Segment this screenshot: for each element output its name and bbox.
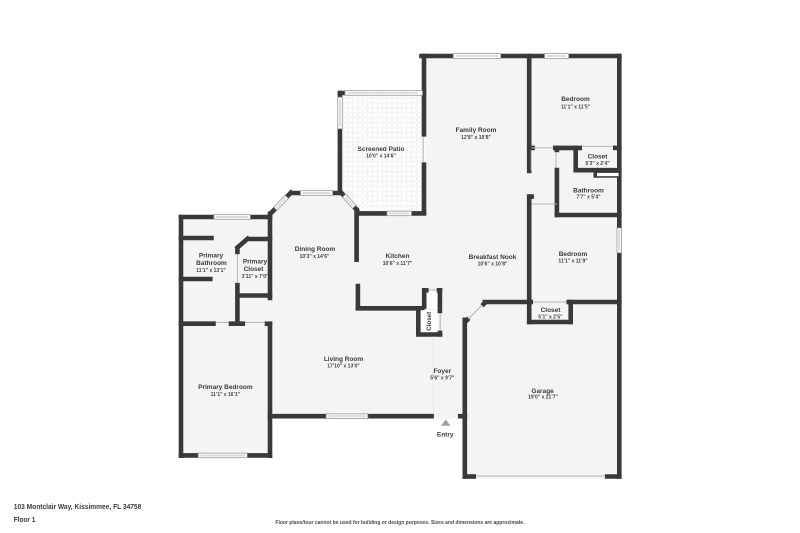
svg-text:10’3" x 14’6": 10’3" x 14’6": [300, 254, 330, 260]
svg-text:Bathroom: Bathroom: [573, 188, 604, 195]
svg-text:Primary: Primary: [243, 258, 268, 265]
svg-text:11’1" x 16’1": 11’1" x 16’1": [211, 392, 241, 398]
svg-text:Primary Bedroom: Primary Bedroom: [198, 384, 253, 391]
svg-text:Breakfast Nook: Breakfast Nook: [469, 254, 517, 261]
svg-text:Floor plans/tour cannot be use: Floor plans/tour cannot be used for buil…: [275, 520, 525, 526]
svg-text:12’8" x 19’8": 12’8" x 19’8": [461, 135, 491, 141]
svg-text:Living Room: Living Room: [324, 356, 364, 363]
svg-text:19’0" x 21’7": 19’0" x 21’7": [528, 394, 558, 400]
svg-text:3’11" x 7’0": 3’11" x 7’0": [242, 274, 269, 280]
svg-text:Foyer: Foyer: [433, 368, 451, 375]
svg-text:11’1" x 11’9": 11’1" x 11’9": [558, 259, 588, 265]
svg-text:11’1" x 13’1": 11’1" x 13’1": [196, 268, 226, 274]
svg-text:Bathroom: Bathroom: [196, 260, 227, 267]
svg-text:Closet: Closet: [541, 307, 562, 314]
svg-text:Primary: Primary: [199, 252, 224, 259]
svg-text:103 Montclair Way, Kissimmee,: 103 Montclair Way, Kissimmee, FL 34758: [14, 504, 142, 511]
svg-text:17’10" x 13’0": 17’10" x 13’0": [327, 364, 360, 370]
svg-text:5’6" x 9’7": 5’6" x 9’7": [430, 376, 455, 382]
svg-text:11’1" x 11’5": 11’1" x 11’5": [561, 104, 591, 110]
svg-text:Screened Patio: Screened Patio: [358, 146, 405, 153]
svg-text:Entry: Entry: [437, 431, 454, 438]
svg-text:10’0" x 14’6": 10’0" x 14’6": [366, 154, 396, 160]
svg-text:Closet: Closet: [244, 266, 265, 273]
svg-text:10’6" x 11’7": 10’6" x 11’7": [383, 261, 413, 267]
svg-text:7’7" x 5’4": 7’7" x 5’4": [576, 195, 601, 201]
svg-text:Closet: Closet: [588, 153, 609, 160]
svg-text:Dining Room: Dining Room: [295, 246, 336, 253]
svg-text:Family Room: Family Room: [456, 127, 497, 134]
svg-text:Closet: Closet: [426, 312, 433, 331]
svg-text:Bedroom: Bedroom: [561, 96, 590, 103]
svg-text:5’3" x 2’4": 5’3" x 2’4": [585, 161, 610, 167]
svg-text:10’6" x 10’8": 10’6" x 10’8": [478, 262, 508, 268]
svg-text:Kitchen: Kitchen: [386, 253, 410, 260]
svg-text:Floor 1: Floor 1: [14, 517, 36, 524]
svg-text:Bedroom: Bedroom: [559, 251, 588, 258]
svg-text:5’1" x 2’5": 5’1" x 2’5": [538, 315, 563, 321]
